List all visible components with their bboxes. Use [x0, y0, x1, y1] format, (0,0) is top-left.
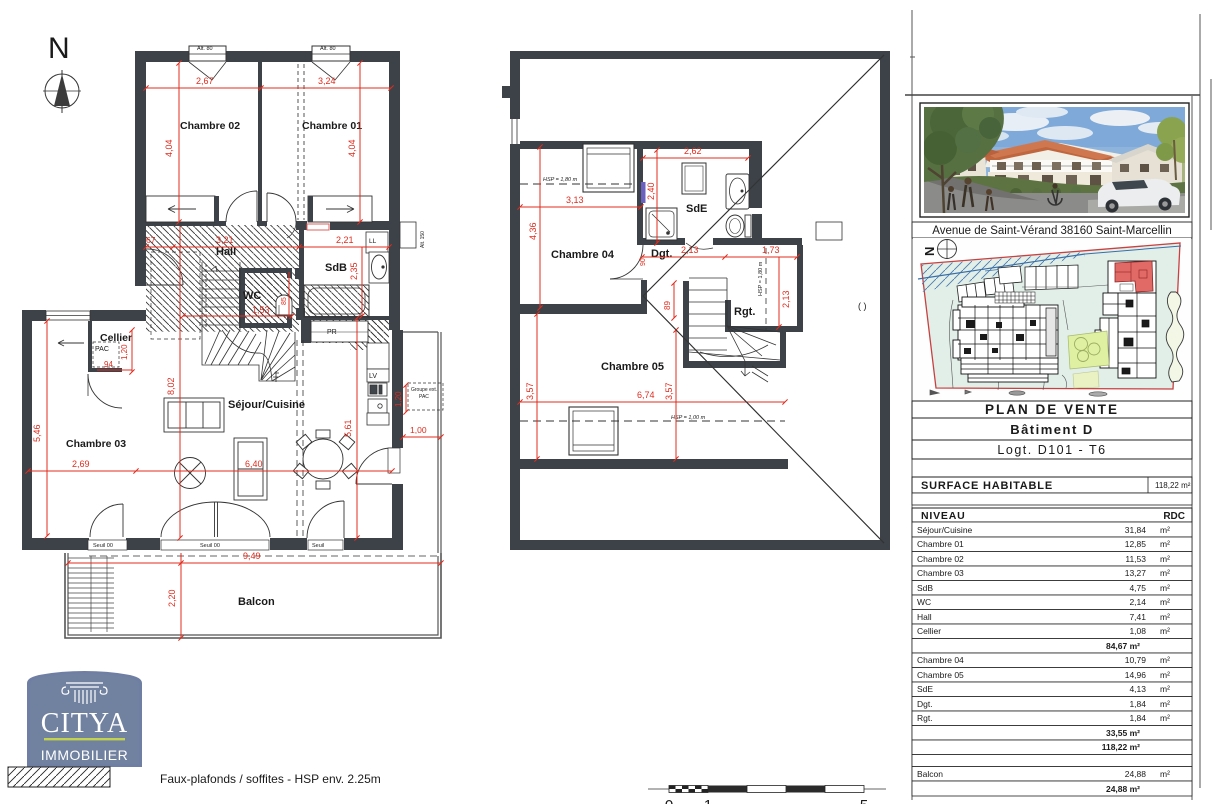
svg-text:Seuil: Seuil	[312, 543, 324, 549]
svg-text:118,22 m²: 118,22 m²	[1155, 481, 1191, 490]
svg-text:3,57: 3,57	[664, 382, 674, 400]
svg-text:( ): ( )	[858, 301, 867, 311]
svg-text:Dgt.: Dgt.	[651, 248, 672, 260]
svg-text:2,20: 2,20	[167, 589, 177, 607]
svg-text:Alt. 150: Alt. 150	[420, 231, 426, 248]
svg-text:14,96: 14,96	[1125, 670, 1147, 680]
svg-text:5,61: 5,61	[343, 419, 353, 437]
svg-text:6,40: 6,40	[245, 459, 263, 469]
svg-text:NIVEAU: NIVEAU	[921, 510, 965, 522]
svg-text:1,84: 1,84	[1129, 699, 1146, 709]
svg-text:84,67 m²: 84,67 m²	[1106, 641, 1140, 651]
svg-text:Hall: Hall	[216, 246, 236, 258]
svg-text:LV: LV	[369, 373, 377, 380]
svg-text:m²: m²	[1160, 597, 1170, 607]
svg-text:90: 90	[640, 258, 647, 266]
svg-text:Groupe ext.: Groupe ext.	[411, 387, 437, 393]
svg-text:3,21: 3,21	[216, 235, 234, 245]
svg-text:m²: m²	[1160, 612, 1170, 622]
svg-text:HSP = 1,80 m: HSP = 1,80 m	[758, 261, 764, 296]
svg-text:3,57: 3,57	[525, 382, 535, 400]
svg-text:Balcon: Balcon	[238, 596, 275, 608]
svg-text:Chambre 05: Chambre 05	[917, 670, 964, 680]
svg-text:2,13: 2,13	[681, 245, 699, 255]
svg-text:Faux-plafonds / soffites - HSP: Faux-plafonds / soffites - HSP env. 2.25…	[160, 772, 381, 786]
svg-text:1: 1	[704, 797, 712, 804]
svg-text:Chambre 02: Chambre 02	[180, 120, 240, 132]
svg-text:1,20: 1,20	[394, 391, 403, 407]
svg-text:PAC: PAC	[95, 346, 109, 353]
svg-text:m²: m²	[1160, 583, 1170, 593]
svg-text:2,62: 2,62	[684, 146, 702, 156]
svg-text:2,21: 2,21	[336, 235, 354, 245]
svg-text:CITYA: CITYA	[41, 708, 128, 739]
svg-text:Bâtiment D: Bâtiment D	[1010, 422, 1094, 437]
svg-text:m²: m²	[1160, 769, 1170, 779]
svg-text:Avenue de Saint-Vérand 38160 S: Avenue de Saint-Vérand 38160 Saint-Marce…	[932, 225, 1172, 237]
svg-text:m²: m²	[1160, 699, 1170, 709]
svg-text:N: N	[922, 247, 937, 256]
svg-text:1,73: 1,73	[762, 245, 780, 255]
svg-text:Chambre 03: Chambre 03	[66, 438, 126, 450]
svg-text:m²: m²	[1160, 568, 1170, 578]
svg-text:1,53: 1,53	[252, 305, 270, 315]
svg-text:Rgt.: Rgt.	[734, 306, 755, 318]
svg-text:Alt. 80: Alt. 80	[197, 46, 213, 52]
svg-text:24,88: 24,88	[1125, 769, 1147, 779]
svg-text:PAC: PAC	[419, 394, 429, 400]
svg-text:SdB: SdB	[917, 583, 933, 593]
svg-text:2,35: 2,35	[349, 262, 359, 280]
svg-text:2,40: 2,40	[646, 182, 656, 200]
svg-text:1,84: 1,84	[1129, 713, 1146, 723]
svg-text:HSP = 1,80 m: HSP = 1,80 m	[543, 177, 578, 183]
svg-text:4,13: 4,13	[1129, 684, 1146, 694]
svg-text:5,46: 5,46	[32, 424, 42, 442]
svg-text:Chambre 01: Chambre 01	[302, 120, 362, 132]
svg-text:89: 89	[663, 301, 672, 310]
svg-text:Chambre 03: Chambre 03	[917, 568, 964, 578]
svg-text:m²: m²	[1160, 525, 1170, 535]
svg-text:3,13: 3,13	[566, 195, 584, 205]
svg-text:9,49: 9,49	[243, 551, 261, 561]
svg-text:PR: PR	[327, 329, 337, 336]
svg-text:10,79: 10,79	[1125, 655, 1147, 665]
svg-text:m²: m²	[1160, 554, 1170, 564]
svg-text:8,02: 8,02	[166, 377, 176, 395]
svg-text:m²: m²	[1160, 713, 1170, 723]
svg-text:Chambre 04: Chambre 04	[917, 655, 964, 665]
svg-text:Séjour/Cuisine: Séjour/Cuisine	[917, 525, 973, 535]
svg-text:0: 0	[665, 797, 673, 804]
svg-text:6,74: 6,74	[637, 390, 655, 400]
svg-text:m²: m²	[1160, 626, 1170, 636]
svg-text:33,55 m²: 33,55 m²	[1106, 728, 1140, 738]
svg-text:Chambre 02: Chambre 02	[917, 554, 964, 564]
svg-text:Séjour/Cuisine: Séjour/Cuisine	[228, 399, 305, 411]
svg-text:m²: m²	[1160, 539, 1170, 549]
svg-text:31,84: 31,84	[1125, 525, 1147, 535]
svg-text:3,24: 3,24	[318, 76, 336, 86]
svg-text:m²: m²	[1160, 655, 1170, 665]
svg-text:PLAN DE VENTE: PLAN DE VENTE	[985, 402, 1119, 417]
svg-text:Dgt.: Dgt.	[917, 699, 933, 709]
svg-text:LL: LL	[369, 238, 377, 245]
svg-text:Chambre 05: Chambre 05	[601, 361, 664, 373]
svg-text:2,13: 2,13	[781, 290, 791, 308]
svg-text:1,00: 1,00	[410, 425, 427, 435]
svg-text:7,41: 7,41	[1129, 612, 1146, 622]
svg-text:4,04: 4,04	[347, 139, 357, 157]
svg-text:12,85: 12,85	[1125, 539, 1147, 549]
svg-text:SdB: SdB	[325, 262, 347, 274]
svg-text:4,04: 4,04	[164, 139, 174, 157]
svg-text:67: 67	[146, 235, 156, 245]
svg-text:Rgt.: Rgt.	[917, 713, 933, 723]
svg-text:118,22 m²: 118,22 m²	[1102, 742, 1140, 752]
svg-text:Seuil 00: Seuil 00	[200, 543, 220, 549]
svg-text:Alt. 80: Alt. 80	[320, 46, 336, 52]
svg-text:IMMOBILIER: IMMOBILIER	[41, 747, 128, 763]
svg-text:Logt. D101 - T6: Logt. D101 - T6	[997, 443, 1106, 457]
svg-text:SdE: SdE	[917, 684, 933, 694]
svg-text:4,75: 4,75	[1129, 583, 1146, 593]
svg-text:1,20: 1,20	[120, 344, 129, 360]
svg-text:1,08: 1,08	[1129, 626, 1146, 636]
svg-text:Chambre 04: Chambre 04	[551, 249, 615, 261]
svg-text:Balcon: Balcon	[917, 769, 943, 779]
svg-text:m²: m²	[1160, 684, 1170, 694]
svg-text:2,67: 2,67	[196, 76, 214, 86]
svg-text:Cellier: Cellier	[917, 626, 941, 636]
svg-text:Seuil 00: Seuil 00	[93, 543, 113, 549]
svg-text:WC: WC	[917, 597, 931, 607]
svg-text:4,36: 4,36	[528, 222, 538, 240]
svg-text:11,53: 11,53	[1125, 554, 1146, 564]
svg-text:24,88 m²: 24,88 m²	[1106, 784, 1140, 794]
svg-text:5: 5	[860, 797, 868, 804]
svg-text:RDC: RDC	[1163, 511, 1185, 522]
svg-text:m²: m²	[1160, 670, 1170, 680]
svg-text:SdE: SdE	[686, 203, 707, 215]
svg-text:2,69: 2,69	[72, 459, 90, 469]
svg-text:85: 85	[281, 297, 288, 305]
svg-text:Hall: Hall	[917, 612, 932, 622]
svg-text:2,14: 2,14	[1129, 597, 1146, 607]
svg-text:N: N	[48, 32, 70, 65]
svg-text:WC: WC	[243, 290, 261, 302]
svg-text:SURFACE HABITABLE: SURFACE HABITABLE	[921, 480, 1053, 492]
svg-text:Chambre 01: Chambre 01	[917, 539, 964, 549]
svg-text:13,27: 13,27	[1125, 568, 1147, 578]
svg-text:94: 94	[104, 360, 113, 369]
